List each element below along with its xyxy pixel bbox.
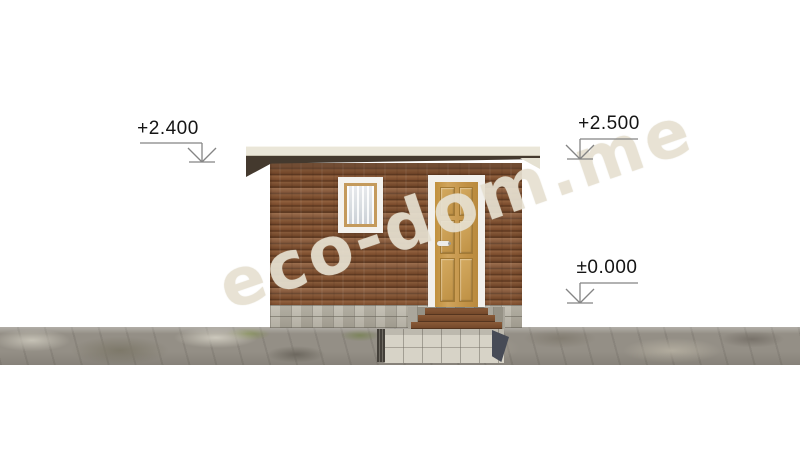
door-panel [459, 220, 474, 254]
entry-step [425, 308, 488, 315]
entry-step [411, 322, 502, 329]
window-curtain [344, 183, 377, 227]
door-panel [440, 220, 455, 254]
door-panel [459, 187, 474, 216]
level-symbol-icon [558, 280, 642, 308]
elevation-label-ground: ±0.000 [574, 257, 640, 279]
door-handle [437, 241, 450, 246]
entry-step [418, 315, 495, 322]
roof-overhang-left [246, 163, 272, 177]
drain-pipe [377, 329, 385, 362]
level-symbol-icon [558, 136, 642, 164]
window [338, 177, 383, 233]
roof-slab [246, 146, 540, 156]
door-frame [428, 175, 485, 307]
elevation-canvas: eco-dom.me +2.400 +2.500 ±0.000 [0, 0, 800, 450]
level-symbol-icon [136, 139, 220, 167]
basement-concrete-wall [384, 329, 504, 363]
door-panel [459, 258, 474, 302]
elevation-label-roof-right: +2.500 [576, 113, 642, 135]
door-panel [440, 187, 455, 216]
elevation-label-roof-left: +2.400 [136, 118, 200, 140]
roof-overhang-right [520, 158, 540, 169]
door-panel [440, 258, 455, 302]
